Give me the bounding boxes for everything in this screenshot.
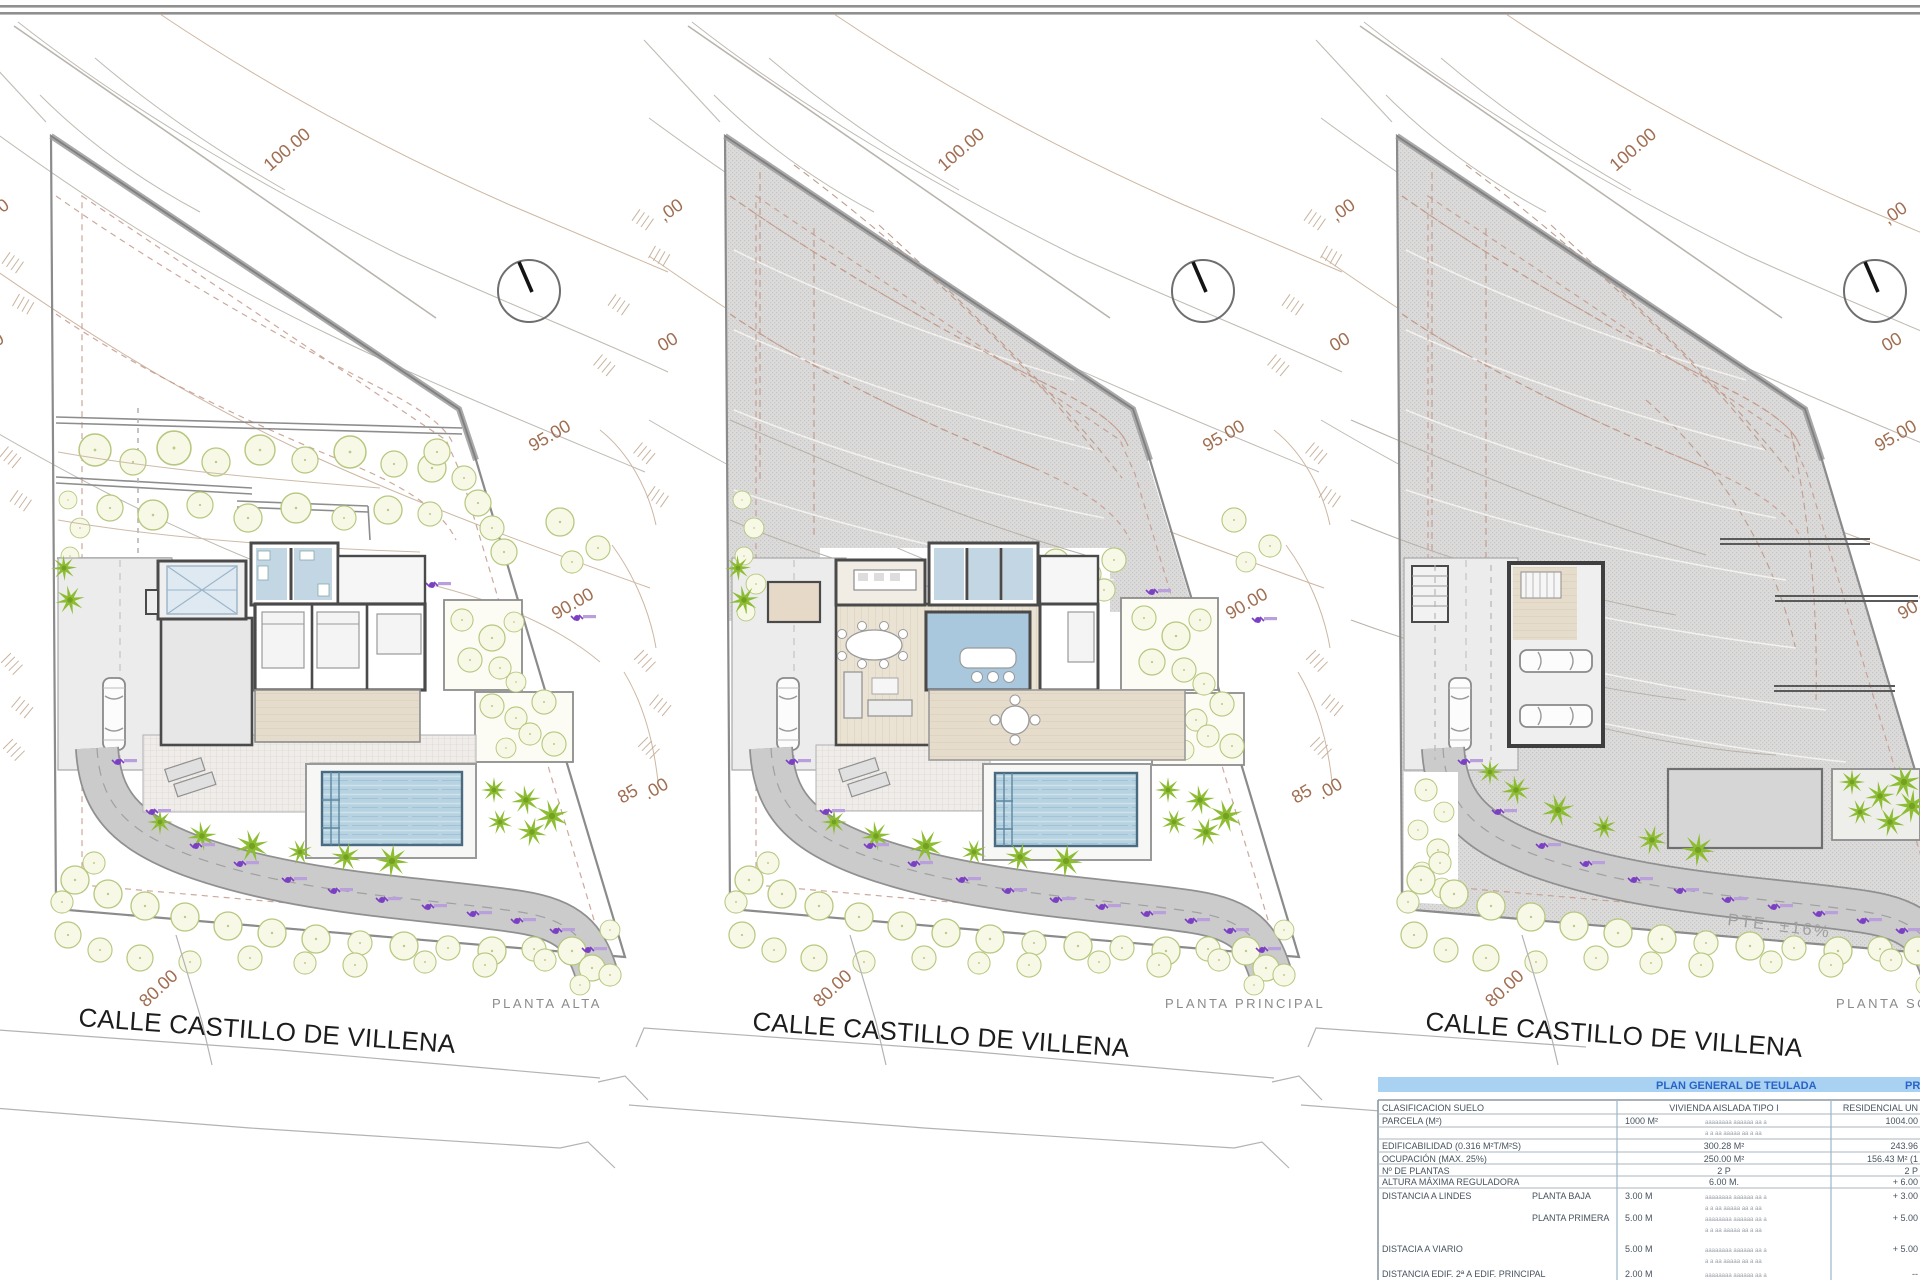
svg-text:Nº DE PLANTAS: Nº DE PLANTAS	[1382, 1166, 1450, 1176]
svg-text:a a aa aaaaa aa a aa: a a aa aaaaa aa a aa	[1705, 1206, 1762, 1212]
svg-text:a a aa aaaaa aa a aa: a a aa aaaaa aa a aa	[1705, 1131, 1762, 1137]
svg-text:5.00 M: 5.00 M	[1625, 1244, 1653, 1254]
svg-text:243.96: 243.96	[1890, 1141, 1918, 1151]
svg-text:ALTURA MÁXIMA REGULADORA: ALTURA MÁXIMA REGULADORA	[1382, 1177, 1519, 1187]
svg-text:+ 6.00: + 6.00	[1893, 1177, 1918, 1187]
svg-text:PLANTA PRIMERA: PLANTA PRIMERA	[1532, 1213, 1609, 1223]
svg-text:aaaaaaaa aaaaaa aa a: aaaaaaaa aaaaaa aa a	[1705, 1217, 1767, 1223]
svg-text:PLANTA PRINCIPAL: PLANTA PRINCIPAL	[1165, 996, 1325, 1011]
svg-text:CLASIFICACION SUELO: CLASIFICACION SUELO	[1382, 1103, 1484, 1113]
svg-text:250.00 M²: 250.00 M²	[1704, 1154, 1745, 1164]
svg-text:OCUPACIÓN (MAX. 25%): OCUPACIÓN (MAX. 25%)	[1382, 1154, 1487, 1164]
svg-text:aaaaaaaa aaaaaa aa a: aaaaaaaa aaaaaa aa a	[1705, 1120, 1767, 1126]
svg-text:300.28 M²: 300.28 M²	[1704, 1141, 1745, 1151]
svg-text:+ 5.00: + 5.00	[1893, 1244, 1918, 1254]
svg-text:3.00 M: 3.00 M	[1625, 1191, 1653, 1201]
svg-text:aaaaaaaa aaaaaa aa a: aaaaaaaa aaaaaa aa a	[1705, 1273, 1767, 1279]
svg-text:VIVIENDA AISLADA TIPO I: VIVIENDA AISLADA TIPO I	[1669, 1103, 1778, 1113]
svg-text:--: --	[1912, 1269, 1918, 1279]
svg-text:DISTACIA A VIARIO: DISTACIA A VIARIO	[1382, 1244, 1463, 1254]
svg-text:2 P: 2 P	[1717, 1166, 1731, 1176]
svg-text:DISTANCIA EDIF. 2ª A EDIF. PRI: DISTANCIA EDIF. 2ª A EDIF. PRINCIPAL	[1382, 1269, 1546, 1279]
svg-text:RESIDENCIAL UN: RESIDENCIAL UN	[1843, 1103, 1918, 1113]
svg-text:PLANTA ALTA: PLANTA ALTA	[492, 996, 602, 1011]
svg-text:a a aa aaaaa aa a aa: a a aa aaaaa aa a aa	[1705, 1259, 1762, 1265]
svg-text:+ 5.00: + 5.00	[1893, 1213, 1918, 1223]
svg-text:PROYECTO: PROYECTO	[1905, 1080, 1920, 1092]
svg-text:2.00 M: 2.00 M	[1625, 1269, 1653, 1279]
svg-text:6.00 M.: 6.00 M.	[1709, 1177, 1739, 1187]
svg-text:PARCELA (M²): PARCELA (M²)	[1382, 1116, 1442, 1126]
svg-text:PLANTA SOT: PLANTA SOT	[1836, 996, 1920, 1011]
svg-text:DISTANCIA A LINDES: DISTANCIA A LINDES	[1382, 1191, 1471, 1201]
svg-text:+ 3.00: + 3.00	[1893, 1191, 1918, 1201]
svg-text:a a aa aaaaa aa a aa: a a aa aaaaa aa a aa	[1705, 1228, 1762, 1234]
svg-text:aaaaaaaa aaaaaa aa a: aaaaaaaa aaaaaa aa a	[1705, 1248, 1767, 1254]
svg-text:1000 M²: 1000 M²	[1625, 1116, 1658, 1126]
svg-text:aaaaaaaa aaaaaa aa a: aaaaaaaa aaaaaa aa a	[1705, 1195, 1767, 1201]
svg-text:5.00 M: 5.00 M	[1625, 1213, 1653, 1223]
svg-text:PLAN GENERAL DE TEULADA: PLAN GENERAL DE TEULADA	[1656, 1080, 1817, 1092]
svg-text:EDIFICABILIDAD (0.316 M²T/M²S): EDIFICABILIDAD (0.316 M²T/M²S)	[1382, 1141, 1521, 1151]
svg-text:1004.00: 1004.00	[1885, 1116, 1918, 1126]
svg-text:PLANTA BAJA: PLANTA BAJA	[1532, 1191, 1591, 1201]
svg-text:2 P: 2 P	[1904, 1166, 1918, 1176]
svg-text:156.43 M² (1: 156.43 M² (1	[1867, 1154, 1918, 1164]
